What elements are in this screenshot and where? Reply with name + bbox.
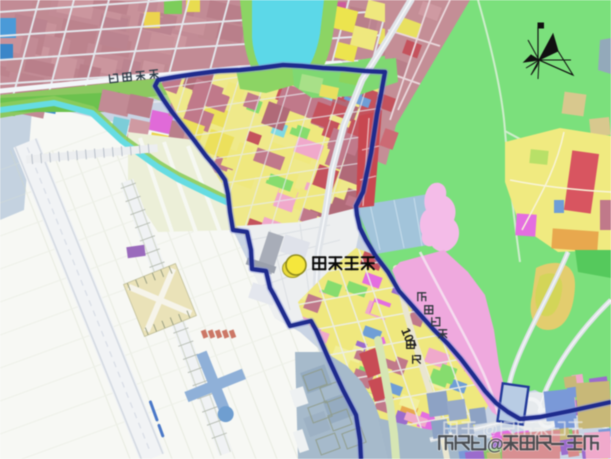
svg-text:@: @: [487, 435, 504, 454]
